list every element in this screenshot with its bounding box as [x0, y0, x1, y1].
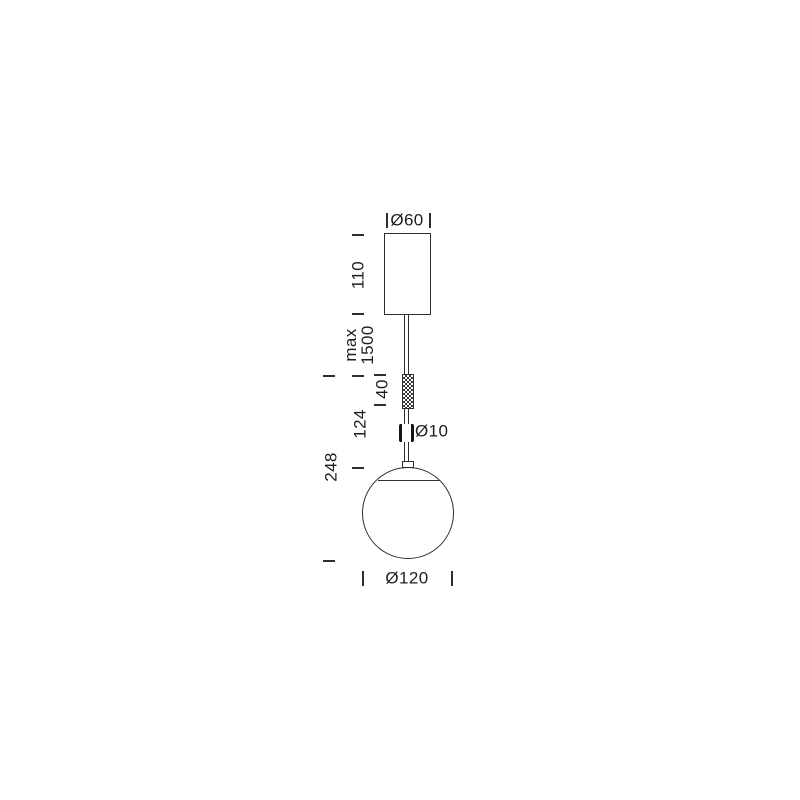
technical-drawing-canvas: Ø60 110 max 1500 40 124 Ø10 248 Ø120: [0, 0, 800, 800]
tick-canopy-height-top: [352, 234, 364, 236]
tick-canopy-diameter-left: [386, 213, 388, 228]
label-stem-length: 124: [352, 409, 369, 439]
tick-drop-section-top: [323, 375, 335, 377]
tick-stem-length-top: [352, 375, 364, 377]
label-canopy-height: 110: [350, 261, 367, 289]
tick-globe-diameter-left: [362, 571, 364, 586]
tick-globe-diameter-right: [451, 571, 453, 586]
ceiling-canopy-cylinder: [384, 233, 431, 315]
label-drop-section-height: 248: [323, 452, 340, 482]
label-cable-max-length: max 1500: [342, 325, 376, 364]
knurled-grip: [402, 374, 414, 409]
tick-grip-height-top: [374, 374, 386, 376]
tick-canopy-height-bottom: [352, 313, 364, 315]
label-globe-diameter: Ø120: [385, 570, 428, 587]
globe-neck-flange: [402, 461, 414, 468]
tick-canopy-diameter-right: [429, 213, 431, 228]
tick-stem-length-bottom: [352, 467, 364, 469]
label-grip-height: 40: [374, 379, 391, 399]
stem-connector: [399, 424, 414, 442]
label-stem-diameter: Ø10: [415, 423, 448, 440]
label-canopy-diameter: Ø60: [390, 212, 423, 229]
suspension-cable: [404, 314, 409, 375]
tick-grip-height-bottom: [374, 404, 386, 406]
globe-cap-joint-line: [378, 480, 440, 481]
tick-drop-section-bottom: [323, 560, 335, 562]
